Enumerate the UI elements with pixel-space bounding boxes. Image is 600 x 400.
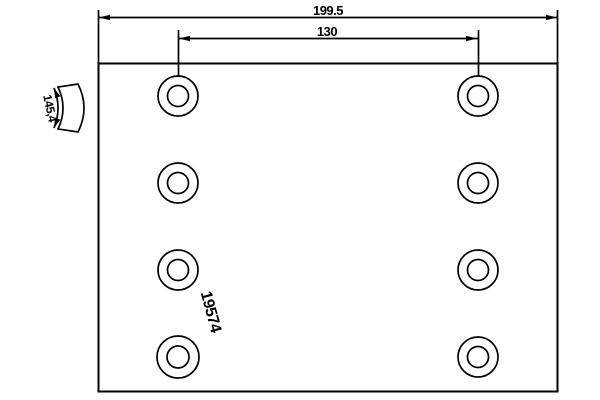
arrowhead-left-icon (179, 36, 190, 42)
hole-outer-circle (158, 163, 198, 203)
side-profile-view: 145,4 (40, 84, 84, 132)
mounting-hole-r1c1 (158, 76, 198, 116)
hole-inner-circle (168, 260, 189, 281)
lining-cross-section (58, 84, 84, 132)
hole-inner-circle (468, 86, 489, 107)
dimension-label-hole-pitch: 130 (317, 24, 337, 39)
mounting-hole-r1c2 (458, 76, 498, 116)
hole-outer-circle (458, 337, 498, 377)
brake-lining-drawing: 199.5 130 (0, 0, 600, 400)
dimension-hole-pitch: 130 (179, 24, 479, 77)
arrowhead-right-icon (466, 36, 477, 42)
arrowhead-left-icon (99, 15, 110, 21)
hole-inner-circle (468, 260, 489, 281)
technical-drawing-canvas: 199.5 130 (0, 0, 600, 400)
hole-inner-circle (468, 173, 489, 194)
hole-outer-circle (458, 76, 498, 116)
dimension-label-overall-length: 199.5 (313, 3, 343, 18)
mounting-hole-r2c1 (158, 163, 198, 203)
hole-outer-circle (157, 336, 199, 378)
hole-inner-circle (168, 173, 189, 194)
mounting-hole-r3c1 (158, 250, 198, 290)
mounting-hole-r2c2 (458, 163, 498, 203)
mounting-hole-r4c1 (157, 336, 199, 378)
hole-outer-circle (158, 76, 198, 116)
hole-inner-circle (168, 86, 189, 107)
mounting-hole-r4c2 (458, 337, 498, 377)
hole-outer-circle (458, 163, 498, 203)
arrowhead-right-icon (546, 15, 557, 21)
hole-inner-circle (167, 346, 189, 368)
part-number-label: 19574 (197, 289, 224, 335)
hole-inner-circle (468, 347, 489, 368)
mounting-hole-r3c2 (458, 250, 498, 290)
hole-outer-circle (158, 250, 198, 290)
hole-outer-circle (458, 250, 498, 290)
